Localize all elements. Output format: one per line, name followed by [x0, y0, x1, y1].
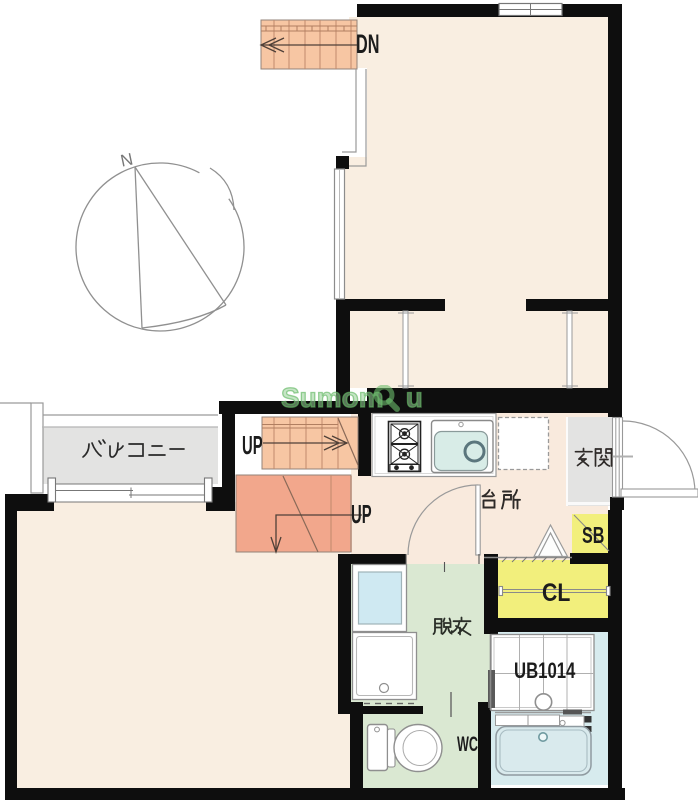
svg-text:N: N — [119, 149, 135, 170]
